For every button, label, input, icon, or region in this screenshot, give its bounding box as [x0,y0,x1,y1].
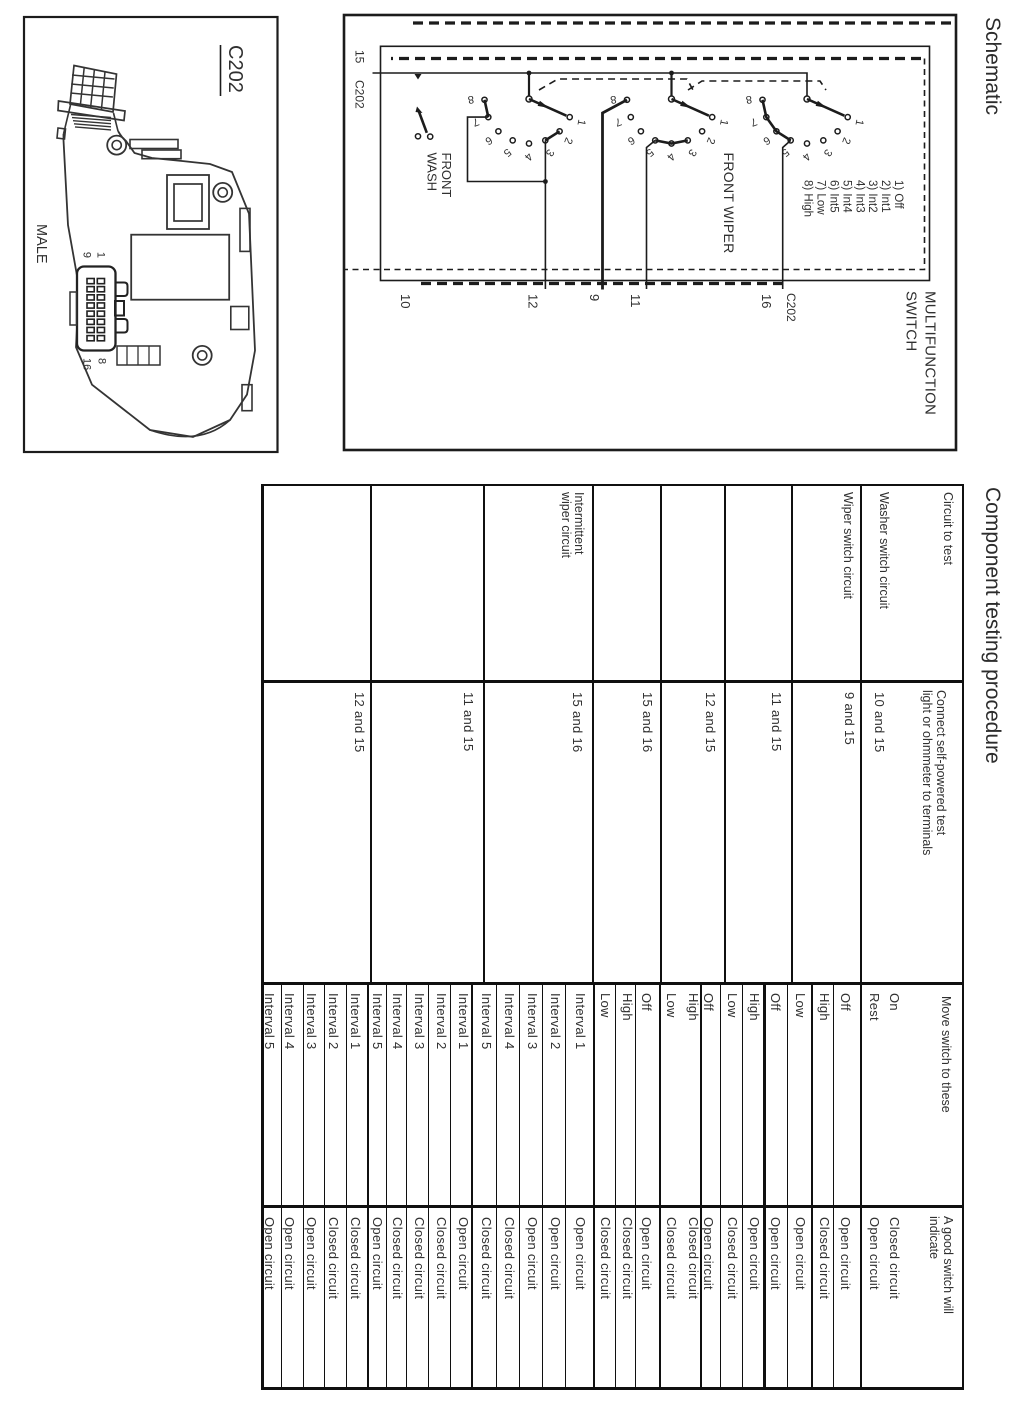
svg-text:SWITCH: SWITCH [903,291,920,351]
svg-text:7: 7 [749,115,759,128]
svg-text:7) Low: 7) Low [815,180,827,215]
svg-text:6: 6 [625,134,636,147]
svg-text:10: 10 [398,294,413,308]
svg-text:1: 1 [853,118,866,126]
svg-text:8) High: 8) High [802,180,814,217]
svg-text:11: 11 [628,294,643,308]
svg-text:1: 1 [575,118,588,126]
svg-text:8: 8 [745,93,753,106]
svg-text:16: 16 [81,358,93,370]
svg-text:12: 12 [526,294,541,308]
svg-text:C202: C202 [353,80,367,109]
svg-text:FRONT WIPER: FRONT WIPER [721,153,737,254]
svg-text:1) Off: 1) Off [892,180,904,209]
svg-text:5: 5 [643,146,655,159]
svg-text:2: 2 [839,136,852,146]
svg-text:5: 5 [779,146,791,159]
svg-text:2: 2 [561,136,574,146]
svg-text:8: 8 [96,358,108,364]
svg-text:1: 1 [95,252,107,258]
svg-text:3: 3 [821,147,834,158]
svg-text:WASH: WASH [425,153,440,192]
svg-text:3: 3 [685,147,698,158]
svg-text:FRONT: FRONT [439,153,454,198]
svg-text:8: 8 [467,93,475,106]
svg-text:5: 5 [501,146,513,159]
svg-text:4: 4 [800,150,813,162]
svg-text:5) Int4: 5) Int4 [840,180,852,213]
svg-text:4) Int3: 4) Int3 [853,180,865,213]
svg-text:2: 2 [704,136,717,146]
svg-text:4: 4 [522,150,535,162]
svg-text:9: 9 [587,294,602,301]
svg-text:6) Int5: 6) Int5 [828,180,840,213]
svg-text:4: 4 [664,150,677,162]
svg-text:C202: C202 [784,293,798,322]
svg-text:9: 9 [81,252,93,258]
svg-text:6: 6 [483,134,494,147]
svg-text:1: 1 [717,118,730,126]
svg-text:15: 15 [353,50,367,64]
svg-text:6: 6 [761,134,772,147]
svg-text:7: 7 [613,115,623,128]
svg-text:C202: C202 [224,45,246,93]
svg-text:8: 8 [609,93,617,106]
svg-text:16: 16 [759,294,774,308]
svg-text:MALE: MALE [33,224,49,264]
svg-text:3) Int2: 3) Int2 [866,180,878,213]
svg-text:MULTIFUNCTION: MULTIFUNCTION [922,291,939,415]
svg-text:2) Int1: 2) Int1 [879,180,891,213]
